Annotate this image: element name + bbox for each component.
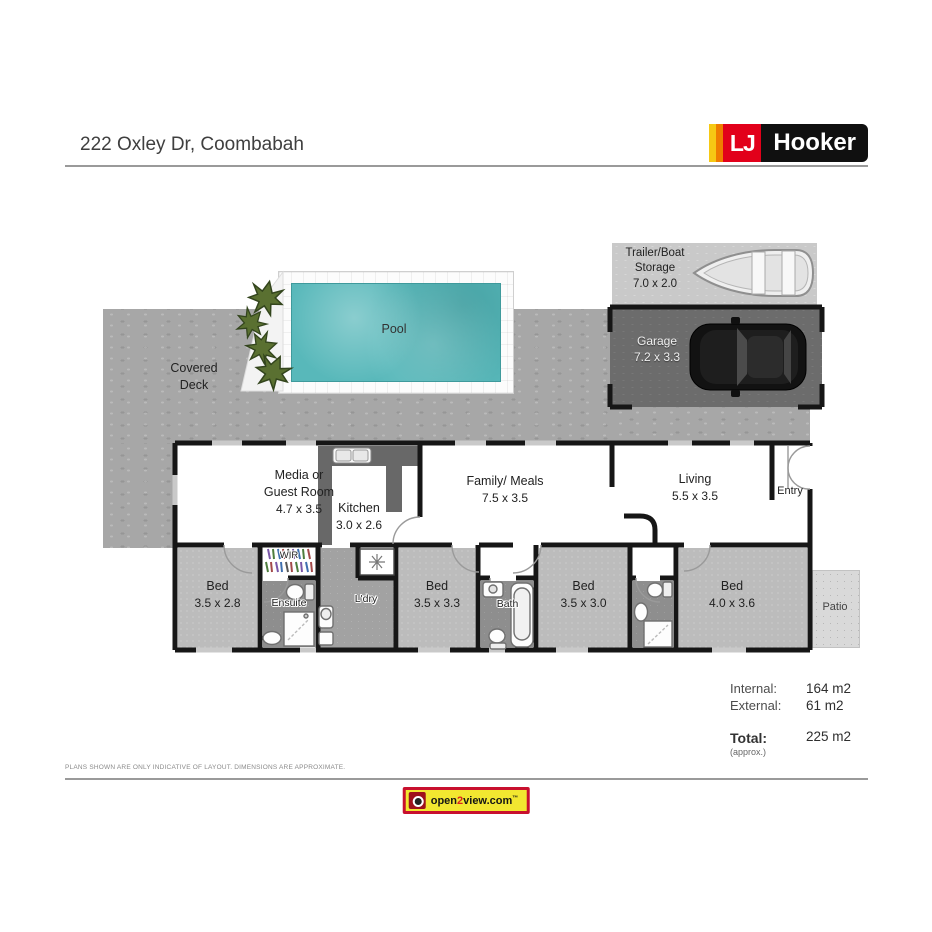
ensuite-label: Ensuite bbox=[262, 596, 316, 610]
shower-icon bbox=[644, 621, 672, 647]
covered-deck-label: Covered Deck bbox=[154, 360, 234, 394]
toilet-icon bbox=[648, 582, 673, 597]
basin-icon bbox=[635, 603, 648, 621]
bed4-label: Bed 4.0 x 3.6 bbox=[672, 578, 792, 611]
family-meals-label: Family/ Meals 7.5 x 3.5 bbox=[430, 473, 580, 506]
shower-icon bbox=[284, 612, 314, 646]
open2view-badge: open2view.com™ bbox=[403, 787, 530, 814]
bed1-label: Bed 3.5 x 2.8 bbox=[178, 578, 257, 611]
wc-icon bbox=[319, 606, 333, 628]
toilet-icon bbox=[489, 629, 506, 649]
boat-icon bbox=[694, 250, 813, 296]
bath-label: Bath bbox=[480, 597, 535, 611]
trailer-storage-label: Trailer/Boat Storage 7.0 x 2.0 bbox=[613, 246, 697, 292]
garage-label: Garage 7.2 x 3.3 bbox=[617, 333, 697, 365]
external-area-label: External: bbox=[730, 698, 781, 713]
laundry-label: L'dry bbox=[336, 592, 396, 606]
wir-label: WIR bbox=[262, 550, 316, 563]
floorplan-page: 222 Oxley Dr, Coombabah LJ Hooker bbox=[0, 0, 932, 932]
washer-icon bbox=[360, 549, 394, 575]
cabinet-icon bbox=[319, 632, 333, 645]
patio-label: Patio bbox=[812, 600, 858, 615]
open2view-text: open2view.com™ bbox=[431, 795, 519, 807]
kitchen-label: Kitchen 3.0 x 2.6 bbox=[322, 500, 396, 533]
vanity-icon bbox=[483, 582, 503, 597]
internal-area-value: 164 m2 bbox=[806, 681, 851, 696]
entry-label: Entry bbox=[768, 484, 812, 499]
basin-icon bbox=[263, 632, 281, 645]
footer-rule bbox=[65, 778, 868, 780]
disclaimer-text: PLANS SHOWN ARE ONLY INDICATIVE OF LAYOU… bbox=[65, 764, 345, 771]
bathtub-icon bbox=[511, 583, 533, 647]
bed2-label: Bed 3.5 x 3.3 bbox=[399, 578, 475, 611]
total-area-value: 225 m2 bbox=[806, 729, 851, 744]
bed3-label: Bed 3.5 x 3.0 bbox=[539, 578, 628, 611]
car-icon bbox=[690, 317, 806, 397]
pool-label: Pool bbox=[344, 321, 444, 338]
living-label: Living 5.5 x 3.5 bbox=[640, 471, 750, 504]
camera-icon bbox=[409, 792, 426, 809]
external-area-value: 61 m2 bbox=[806, 698, 844, 713]
internal-area-label: Internal: bbox=[730, 681, 777, 696]
total-area-label: Total: bbox=[730, 730, 767, 746]
sink-icon bbox=[333, 448, 371, 463]
total-approx-note: (approx.) bbox=[730, 747, 766, 757]
